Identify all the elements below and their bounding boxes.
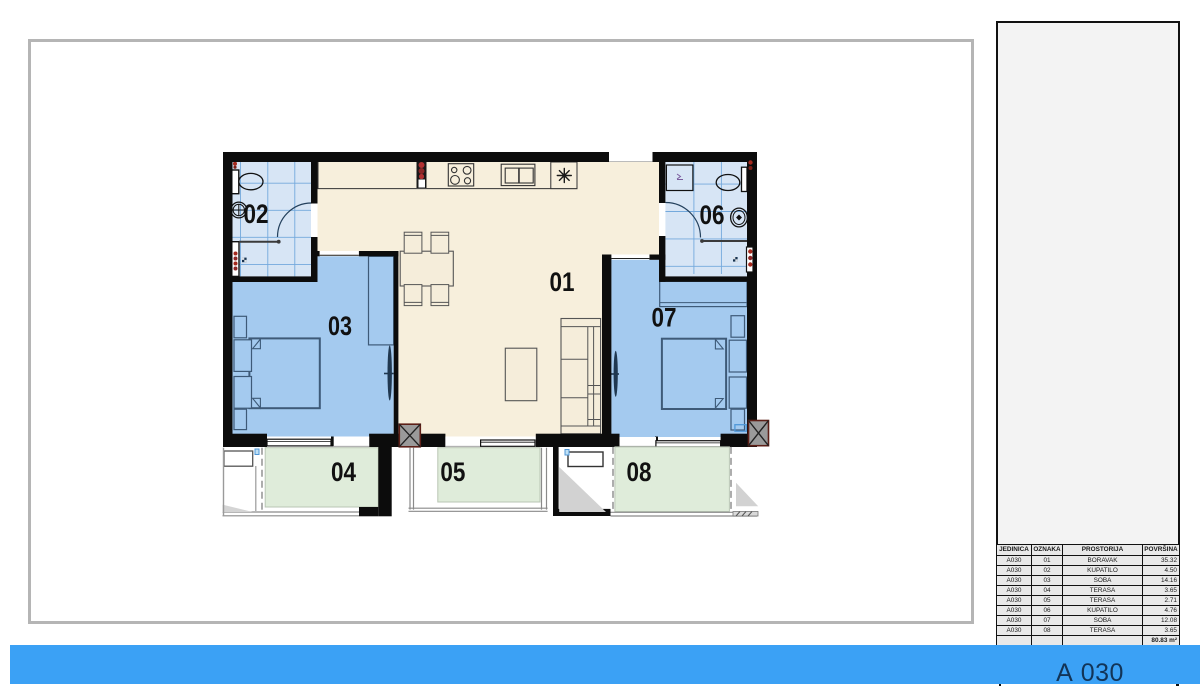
svg-text:02: 02: [244, 199, 269, 229]
svg-text:07: 07: [652, 303, 677, 333]
svg-text:04: 04: [331, 457, 356, 487]
svg-text:06: 06: [700, 200, 725, 230]
svg-text:08: 08: [627, 457, 652, 487]
svg-text:03: 03: [328, 311, 352, 341]
svg-text:01: 01: [550, 267, 575, 297]
svg-text:05: 05: [440, 457, 465, 487]
